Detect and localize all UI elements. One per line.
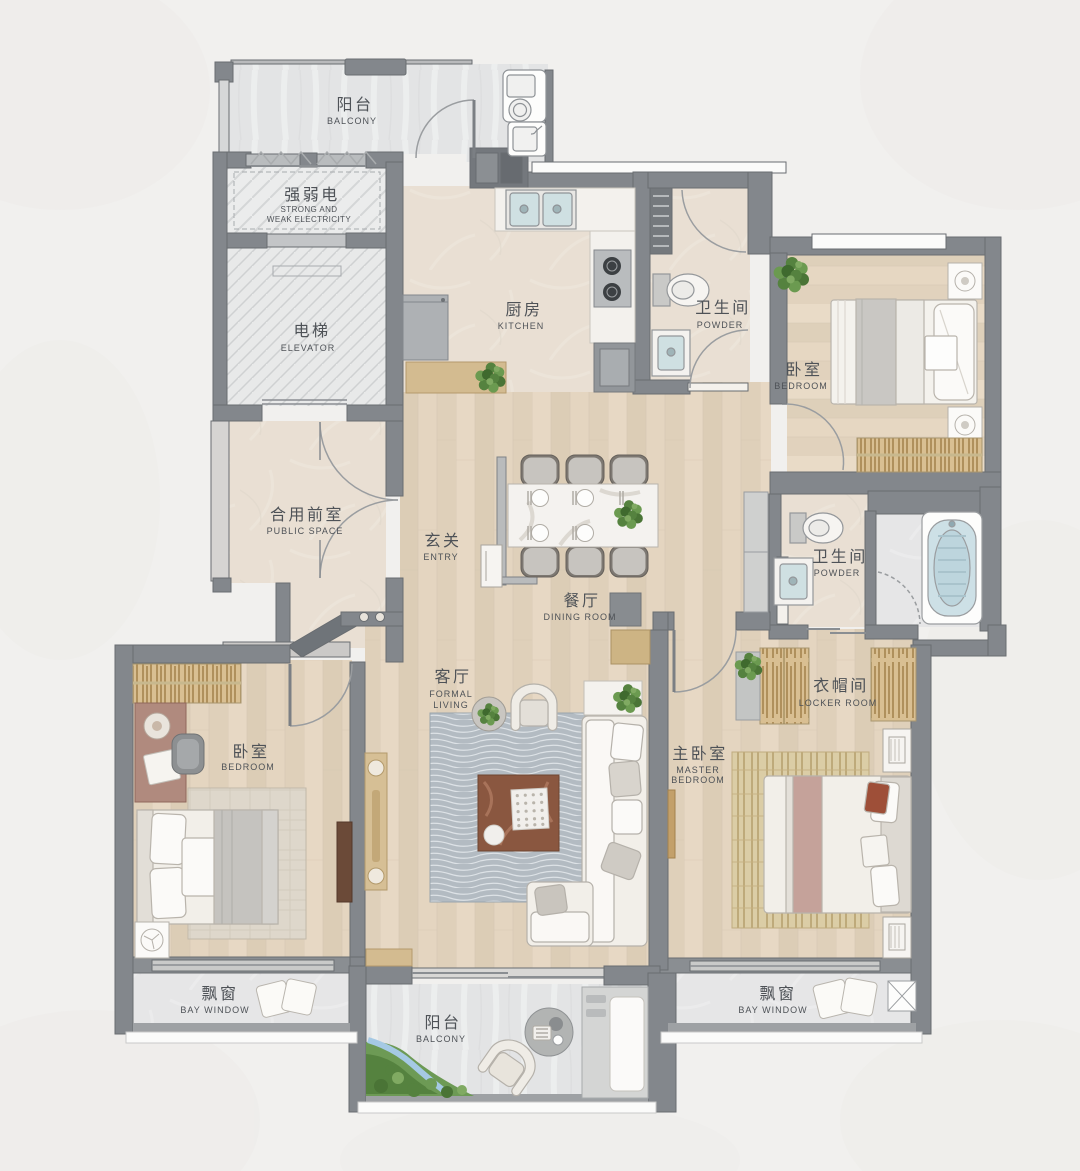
svg-text:卫生间: 卫生间 bbox=[695, 299, 751, 317]
svg-text:KITCHEN: KITCHEN bbox=[498, 321, 545, 331]
svg-text:LIVING: LIVING bbox=[433, 700, 469, 710]
svg-text:BALCONY: BALCONY bbox=[327, 116, 377, 126]
svg-text:POWDER: POWDER bbox=[814, 568, 861, 578]
svg-text:强弱电: 强弱电 bbox=[284, 186, 340, 204]
svg-text:飘窗: 飘窗 bbox=[759, 985, 796, 1003]
svg-text:BALCONY: BALCONY bbox=[416, 1034, 466, 1044]
svg-text:FORMAL: FORMAL bbox=[429, 689, 473, 699]
svg-text:BEDROOM: BEDROOM bbox=[221, 762, 275, 772]
svg-text:BEDROOM: BEDROOM bbox=[671, 775, 725, 785]
svg-text:卧室: 卧室 bbox=[232, 743, 269, 761]
svg-text:飘窗: 飘窗 bbox=[201, 985, 238, 1003]
svg-text:电梯: 电梯 bbox=[293, 322, 330, 340]
svg-text:主卧室: 主卧室 bbox=[672, 745, 728, 763]
svg-text:餐厅: 餐厅 bbox=[563, 592, 600, 610]
svg-text:WEAK ELECTRICITY: WEAK ELECTRICITY bbox=[267, 215, 351, 224]
svg-text:卫生间: 卫生间 bbox=[812, 548, 868, 566]
svg-text:客厅: 客厅 bbox=[434, 668, 471, 686]
svg-text:MASTER: MASTER bbox=[676, 765, 720, 775]
svg-text:合用前室: 合用前室 bbox=[270, 506, 344, 524]
svg-text:BAY WINDOW: BAY WINDOW bbox=[738, 1005, 807, 1015]
svg-text:阳台: 阳台 bbox=[336, 96, 373, 114]
svg-text:POWDER: POWDER bbox=[697, 320, 744, 330]
svg-text:衣帽间: 衣帽间 bbox=[813, 677, 869, 695]
svg-text:ENTRY: ENTRY bbox=[423, 552, 458, 562]
svg-text:玄关: 玄关 bbox=[424, 532, 461, 550]
svg-text:阳台: 阳台 bbox=[424, 1014, 461, 1032]
svg-text:PUBLIC SPACE: PUBLIC SPACE bbox=[267, 526, 344, 536]
svg-text:LOCKER ROOM: LOCKER ROOM bbox=[799, 698, 878, 708]
svg-text:BAY WINDOW: BAY WINDOW bbox=[180, 1005, 249, 1015]
svg-text:BEDROOM: BEDROOM bbox=[774, 381, 828, 391]
svg-text:卧室: 卧室 bbox=[785, 361, 822, 379]
svg-text:DINING ROOM: DINING ROOM bbox=[544, 612, 617, 622]
svg-text:ELEVATOR: ELEVATOR bbox=[281, 343, 336, 353]
svg-text:STRONG AND: STRONG AND bbox=[281, 205, 338, 214]
svg-text:厨房: 厨房 bbox=[505, 301, 542, 319]
